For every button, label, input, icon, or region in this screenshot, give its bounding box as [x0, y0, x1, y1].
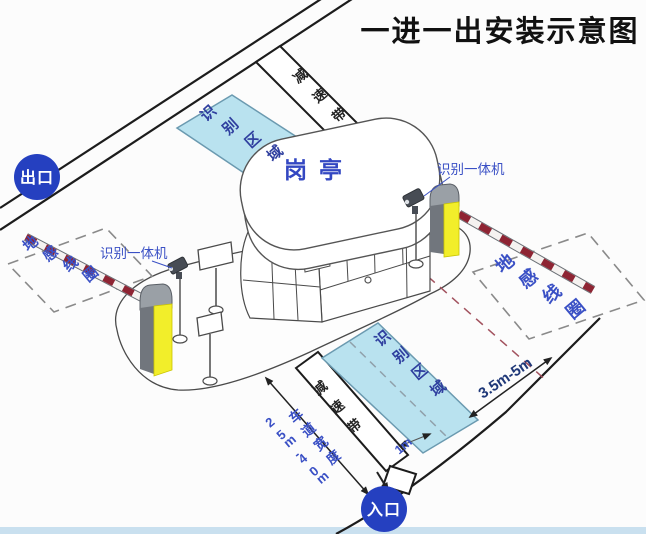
diagram-svg: 岗亭 [0, 0, 646, 534]
camera-base [409, 260, 423, 268]
reader-label-entry: 识别一体机 [437, 162, 505, 177]
camera-mount [176, 272, 182, 279]
entrance-badge: 入口 [361, 486, 407, 532]
reader-label-exit: 识别一体机 [100, 246, 168, 261]
entrance-badge-text: 入口 [367, 501, 401, 519]
camera-lens [405, 200, 409, 204]
diagram-page: 岗亭 [0, 0, 646, 534]
barrier-machine-body [430, 204, 444, 254]
exit-badge-text: 出口 [20, 168, 54, 187]
barrier-machine-body [140, 306, 154, 374]
bottom-strip [0, 527, 646, 534]
sign-base [203, 377, 217, 385]
barrier-machine-yellow [154, 304, 172, 376]
barrier-machine-yellow [444, 202, 459, 257]
page-title: 一进一出安装示意图 [360, 14, 639, 48]
booth-label: 岗亭 [284, 157, 354, 183]
camera-mount [412, 206, 418, 214]
exit-badge: 出口 [14, 154, 60, 200]
camera-base [173, 335, 187, 343]
